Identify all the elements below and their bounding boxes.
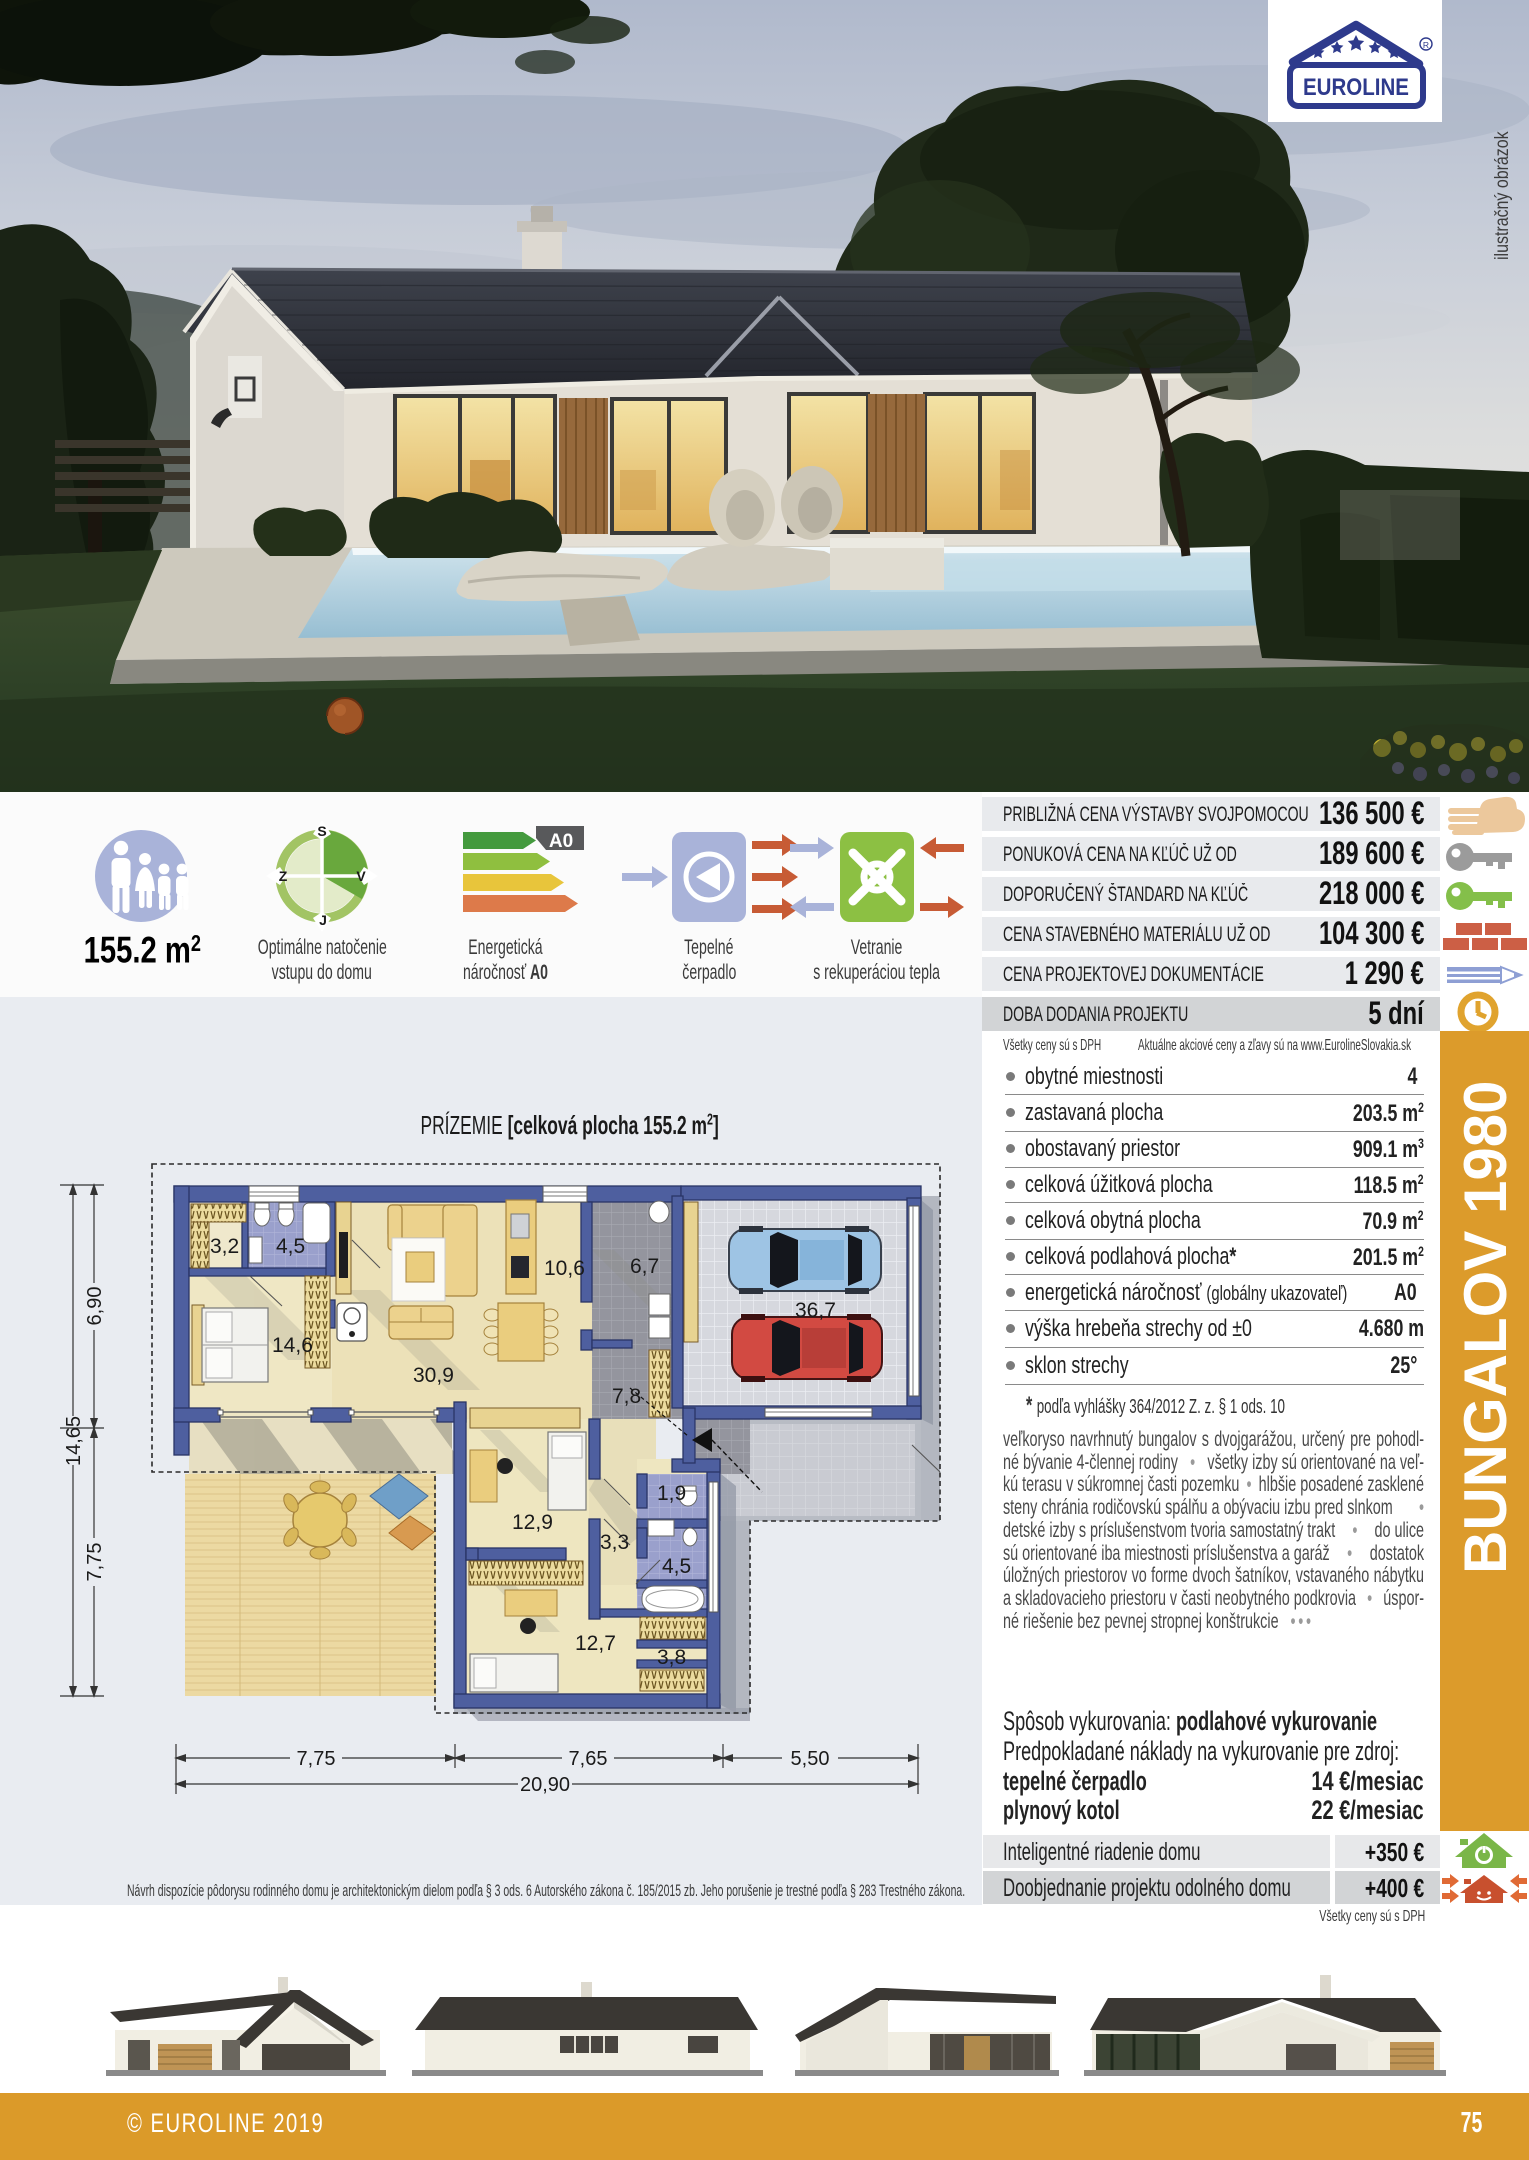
- svg-text:36,7: 36,7: [795, 1299, 836, 1322]
- svg-text:7,65: 7,65: [569, 1748, 608, 1770]
- svg-text:14,6: 14,6: [272, 1334, 313, 1357]
- svg-text:S: S: [317, 823, 326, 839]
- svg-text:20,90: 20,90: [520, 1774, 570, 1796]
- svg-text:14,65: 14,65: [63, 1416, 85, 1466]
- svg-text:5,50: 5,50: [791, 1748, 830, 1770]
- svg-text:7,75: 7,75: [297, 1748, 336, 1770]
- svg-text:3,2: 3,2: [210, 1235, 239, 1258]
- svg-text:7,75: 7,75: [84, 1543, 106, 1582]
- svg-text:6,90: 6,90: [84, 1287, 106, 1326]
- svg-text:R: R: [1423, 40, 1429, 50]
- svg-text:7,8: 7,8: [612, 1385, 641, 1408]
- svg-text:3,3: 3,3: [600, 1531, 629, 1554]
- svg-text:BUNGALOV 1980: BUNGALOV 1980: [1452, 1081, 1519, 1574]
- svg-text:4,5: 4,5: [276, 1235, 305, 1258]
- svg-text:1,9: 1,9: [657, 1482, 686, 1505]
- svg-text:12,9: 12,9: [512, 1511, 553, 1534]
- svg-text:3,8: 3,8: [657, 1646, 686, 1669]
- svg-text:4,5: 4,5: [662, 1555, 691, 1578]
- svg-text:A0: A0: [549, 831, 573, 852]
- svg-text:EUROLINE: EUROLINE: [1303, 74, 1409, 101]
- svg-text:12,7: 12,7: [575, 1632, 616, 1655]
- svg-text:30,9: 30,9: [413, 1364, 454, 1387]
- svg-text:J: J: [319, 912, 327, 928]
- svg-text:Z: Z: [279, 868, 288, 884]
- svg-text:V: V: [356, 868, 366, 884]
- svg-text:10,6: 10,6: [544, 1257, 585, 1280]
- svg-text:6,7: 6,7: [630, 1255, 659, 1278]
